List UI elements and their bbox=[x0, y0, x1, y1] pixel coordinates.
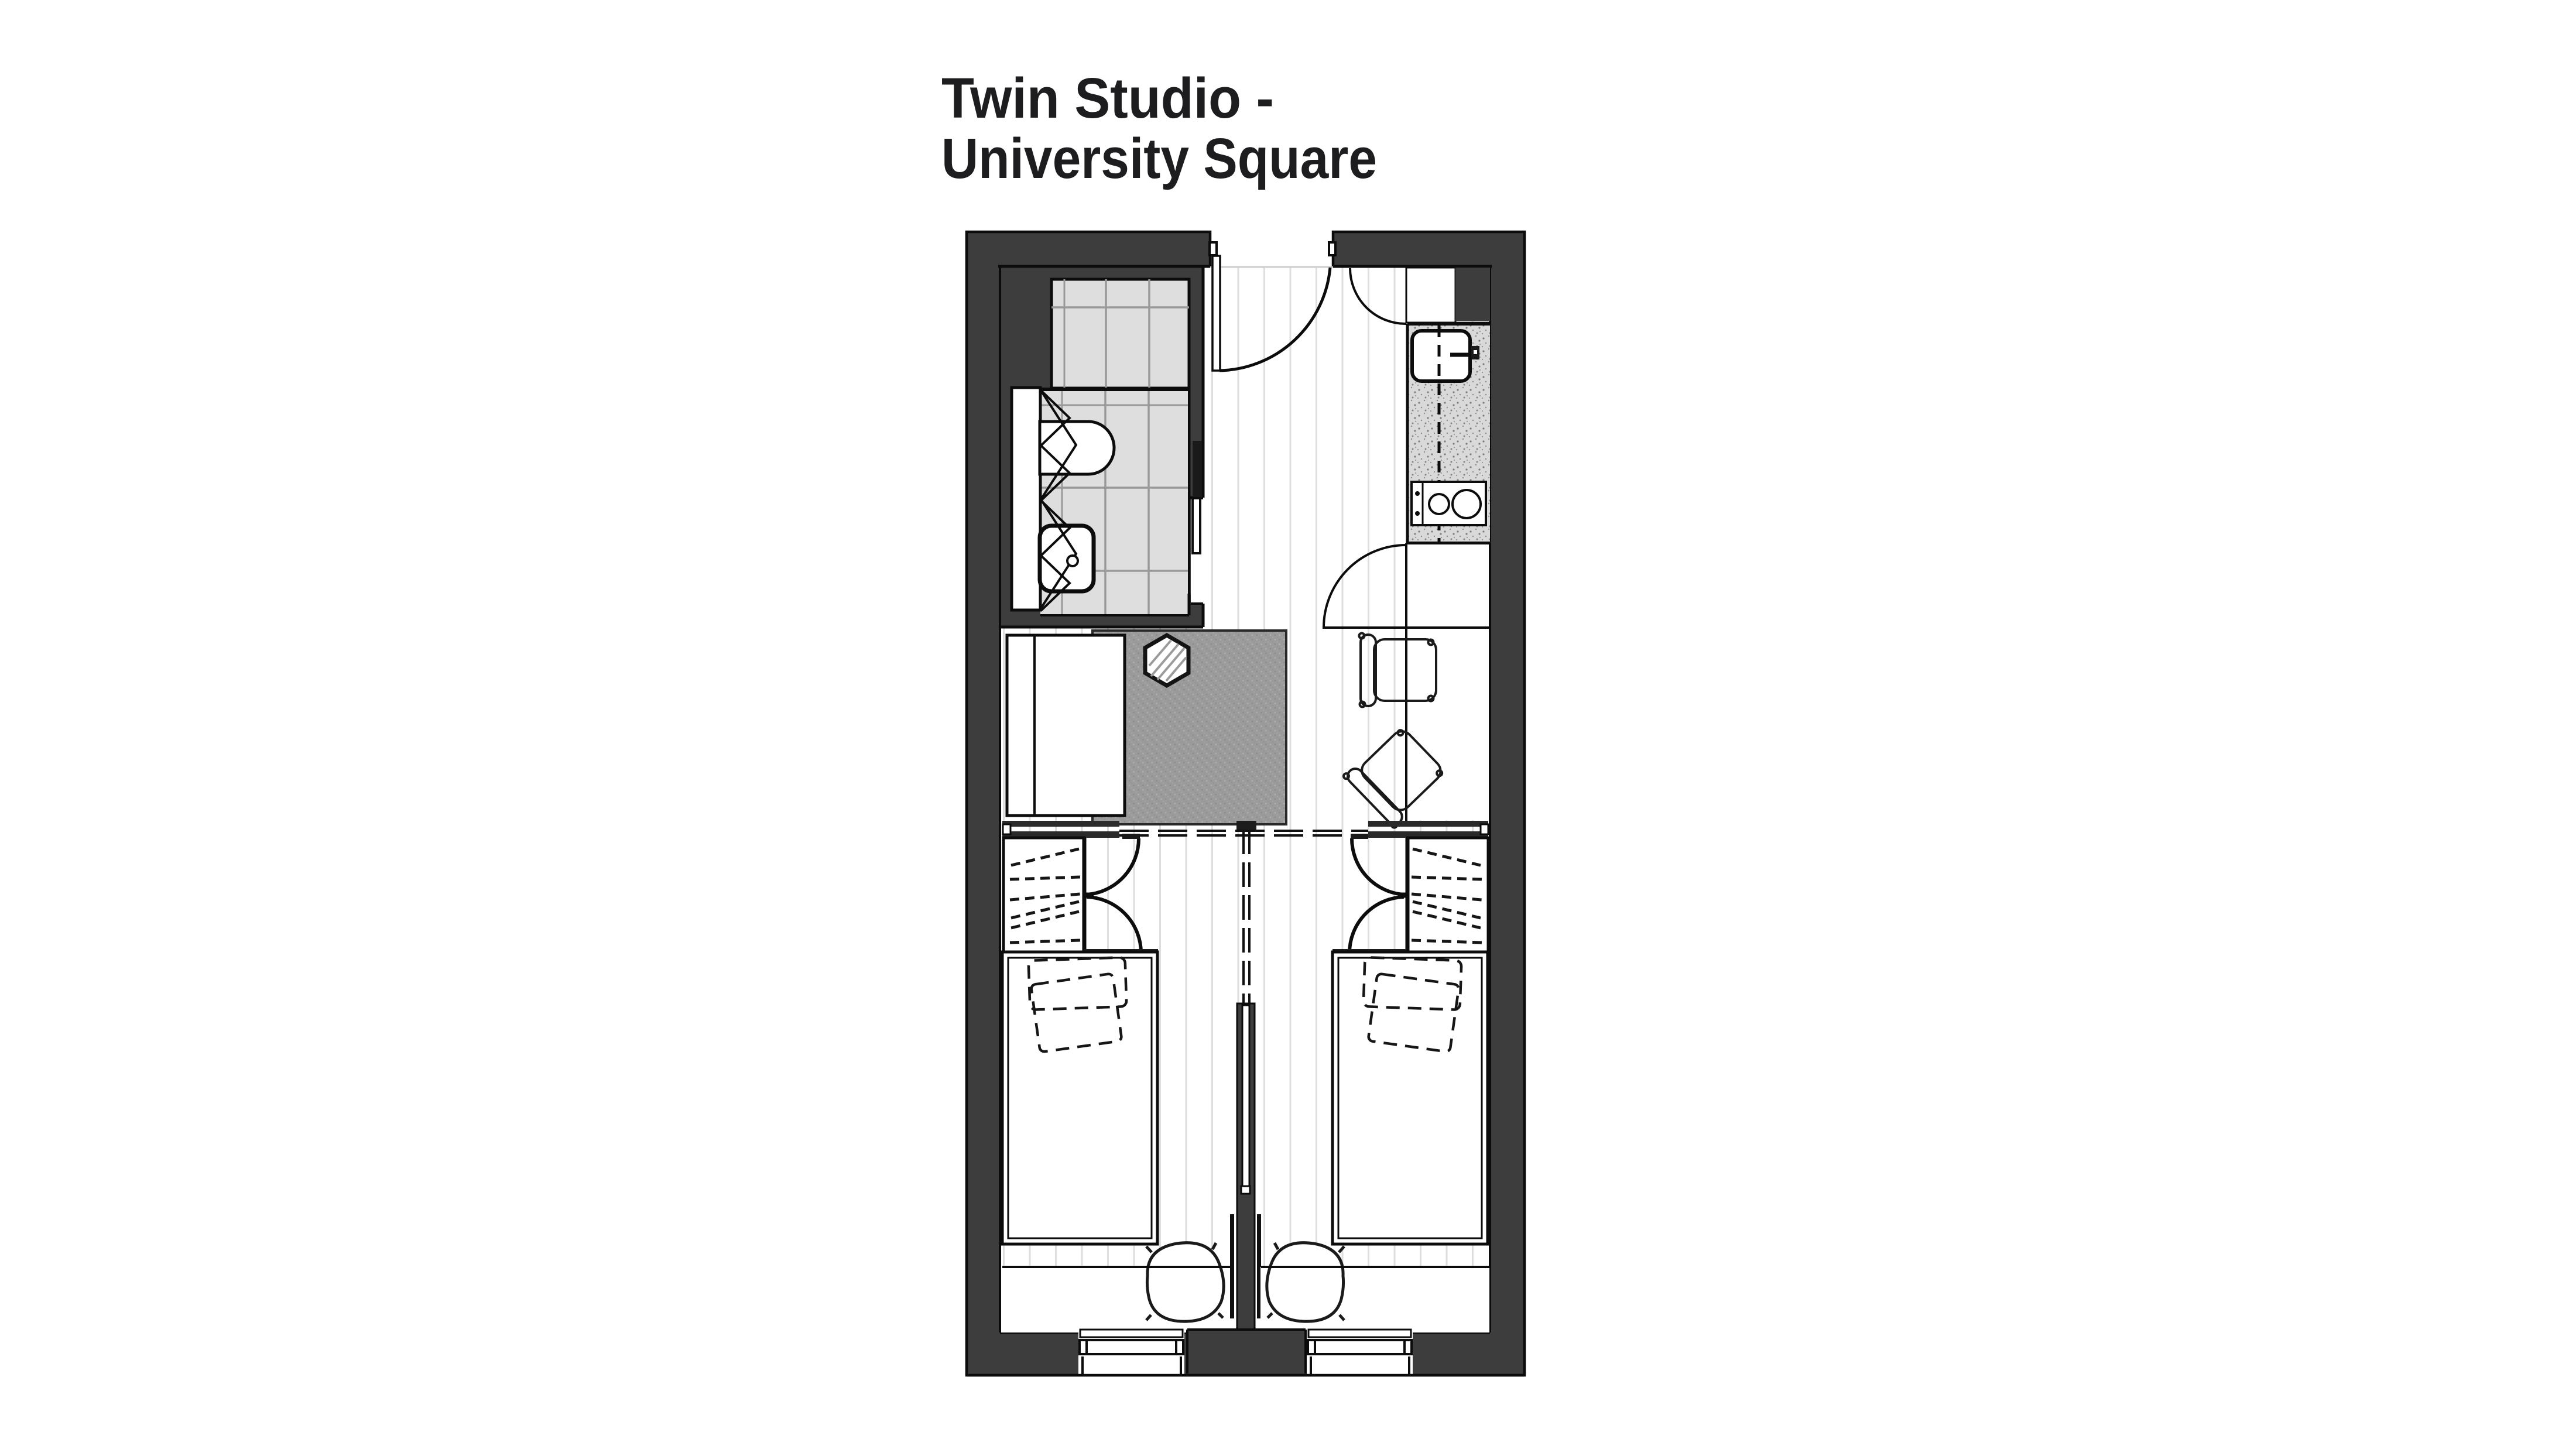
svg-text:University Square: University Square bbox=[941, 126, 1377, 190]
svg-text:Twin Studio -: Twin Studio - bbox=[941, 66, 1274, 130]
